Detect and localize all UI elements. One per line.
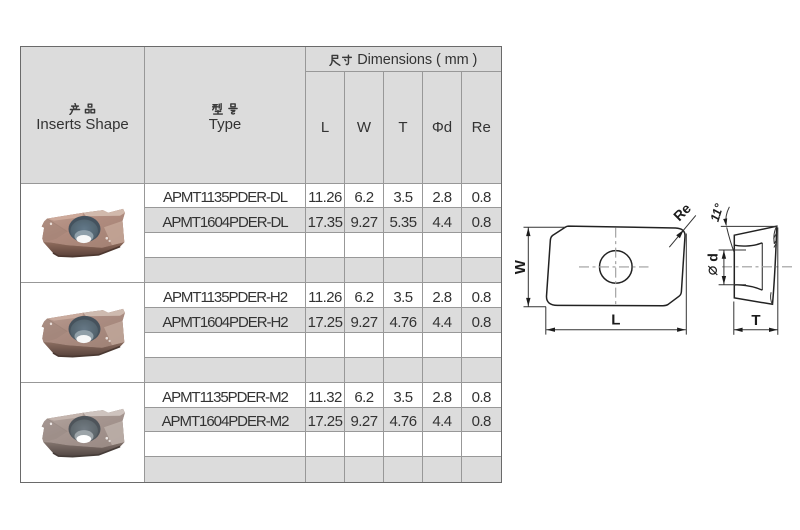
svg-text:L: L <box>611 312 620 329</box>
svg-text:W: W <box>512 259 529 274</box>
svg-text:d: d <box>704 253 720 262</box>
svg-text:T: T <box>751 312 760 329</box>
svg-text:Re: Re <box>670 200 694 224</box>
